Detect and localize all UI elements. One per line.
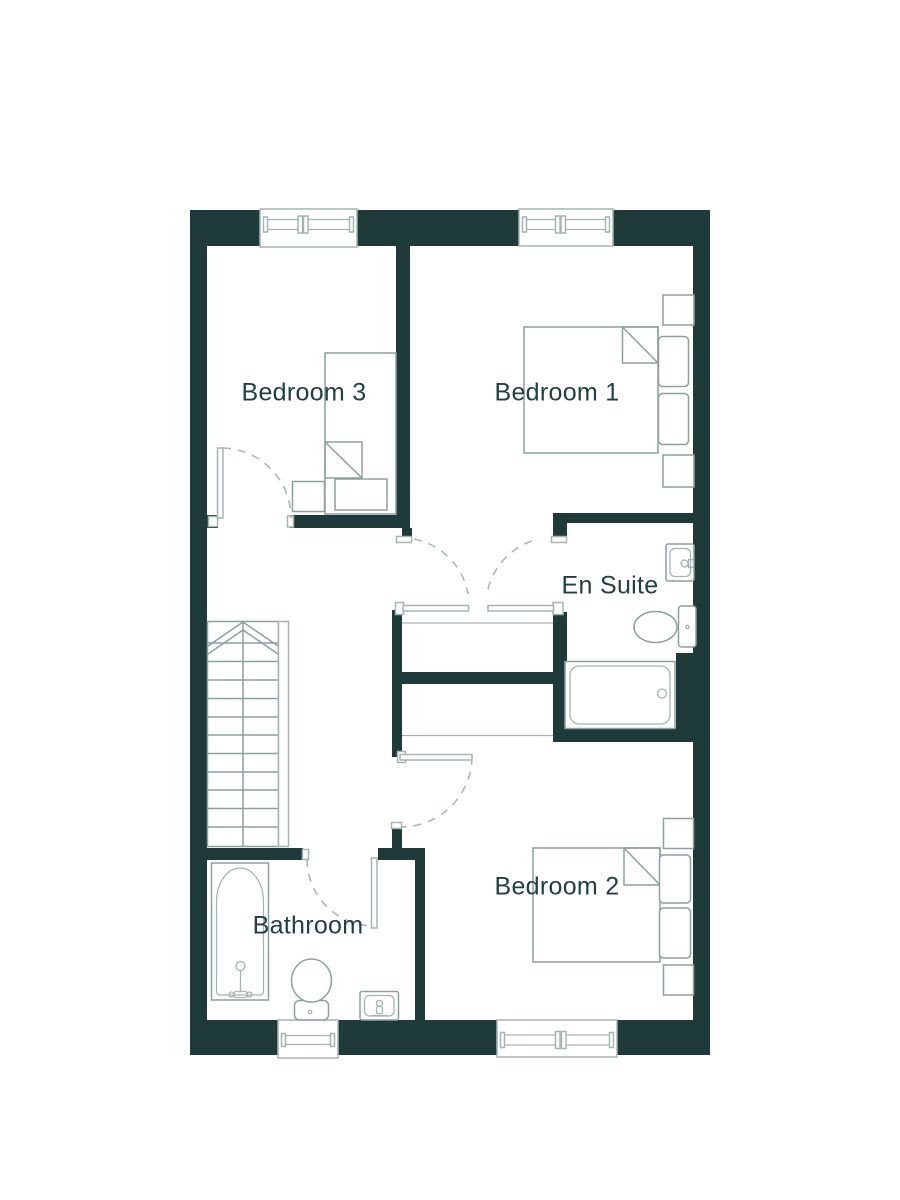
wall-bottom-a <box>190 1020 278 1055</box>
door-bedroom3 <box>209 448 294 527</box>
wall-bathroom-top-left <box>207 848 303 860</box>
side-table-bedroom1-bottom <box>663 455 694 487</box>
door-stop <box>392 823 402 829</box>
door-stop <box>397 537 412 543</box>
toilet-bathroom <box>292 959 332 1020</box>
pillow <box>660 855 691 903</box>
door-leaf <box>400 755 472 761</box>
floor-plan-drawing <box>0 0 900 1200</box>
sink-ensuite <box>666 544 694 581</box>
door-stop <box>209 517 218 527</box>
wall-divider-bed3-bed1 <box>396 246 410 528</box>
window-bedroom3 <box>260 209 357 247</box>
wall-left <box>190 210 207 1055</box>
door-swing-arc <box>414 539 468 594</box>
bed-fold-diagonal <box>623 327 659 363</box>
bed-blanket-box <box>335 479 387 510</box>
sink-bathroom <box>360 992 399 1021</box>
room-label-bathroom: Bathroom <box>253 912 364 941</box>
door-leaf <box>218 448 224 518</box>
pillow <box>659 394 689 445</box>
wall-ensuite-top <box>553 513 693 523</box>
toilet-bowl <box>634 612 677 643</box>
room-label-bedroom1: Bedroom 1 <box>495 379 620 408</box>
room-label-en-suite: En Suite <box>562 572 659 601</box>
door-hinge-plate <box>553 603 563 615</box>
toilet-cistern <box>679 606 697 647</box>
toilet-ensuite <box>634 606 696 647</box>
wall-bottom-b <box>338 1020 497 1055</box>
bed-fold-diagonal <box>624 848 660 885</box>
wall-ensuite-right-thick <box>676 653 710 742</box>
door-stop <box>303 850 309 860</box>
wall-cupboard-mid <box>392 672 567 684</box>
window-bedroom1 <box>519 209 613 246</box>
side-table-bedroom3 <box>293 482 325 512</box>
door-leaf <box>403 606 469 612</box>
single-bed-bedroom3 <box>325 353 396 514</box>
door-bedroom2 <box>392 752 473 829</box>
bathtub-outline <box>565 662 675 729</box>
side-table-bedroom2-bottom <box>664 965 694 995</box>
door-stop <box>552 537 567 543</box>
door-swing-arc <box>401 757 472 827</box>
window-frame <box>278 1020 338 1058</box>
room-label-bedroom3: Bedroom 3 <box>242 379 367 408</box>
pillow <box>659 337 689 387</box>
toilet-bowl <box>292 959 332 1002</box>
floor-plan: Bedroom 3 Bedroom 1 En Suite Bathroom Be… <box>0 0 900 1200</box>
stairs-handrail <box>279 622 289 847</box>
door-bedroom1 <box>396 537 469 615</box>
wall-bathroom-right <box>415 858 425 1020</box>
bathtub-ensuite <box>565 662 675 729</box>
door-ensuite <box>487 537 567 615</box>
door-leaf <box>372 858 378 928</box>
wall-top-a <box>190 210 260 246</box>
window-bedroom2 <box>497 1020 617 1057</box>
room-label-bedroom2: Bedroom 2 <box>495 873 620 902</box>
wall-top-b <box>357 210 519 246</box>
side-table-bedroom2-top <box>664 819 694 849</box>
staircase <box>208 622 289 847</box>
door-leaf <box>488 606 554 612</box>
door-swing-arc <box>223 448 291 518</box>
bed-fold-diagonal <box>325 442 362 478</box>
wall-bed3-south-right <box>290 515 403 528</box>
double-bed-bedroom2 <box>533 848 691 962</box>
side-table-bedroom1-top <box>663 295 694 325</box>
wall-bottom-c <box>617 1020 710 1055</box>
pillow <box>660 908 691 958</box>
window-bathroom <box>278 1020 338 1058</box>
door-swing-arc <box>487 541 532 594</box>
